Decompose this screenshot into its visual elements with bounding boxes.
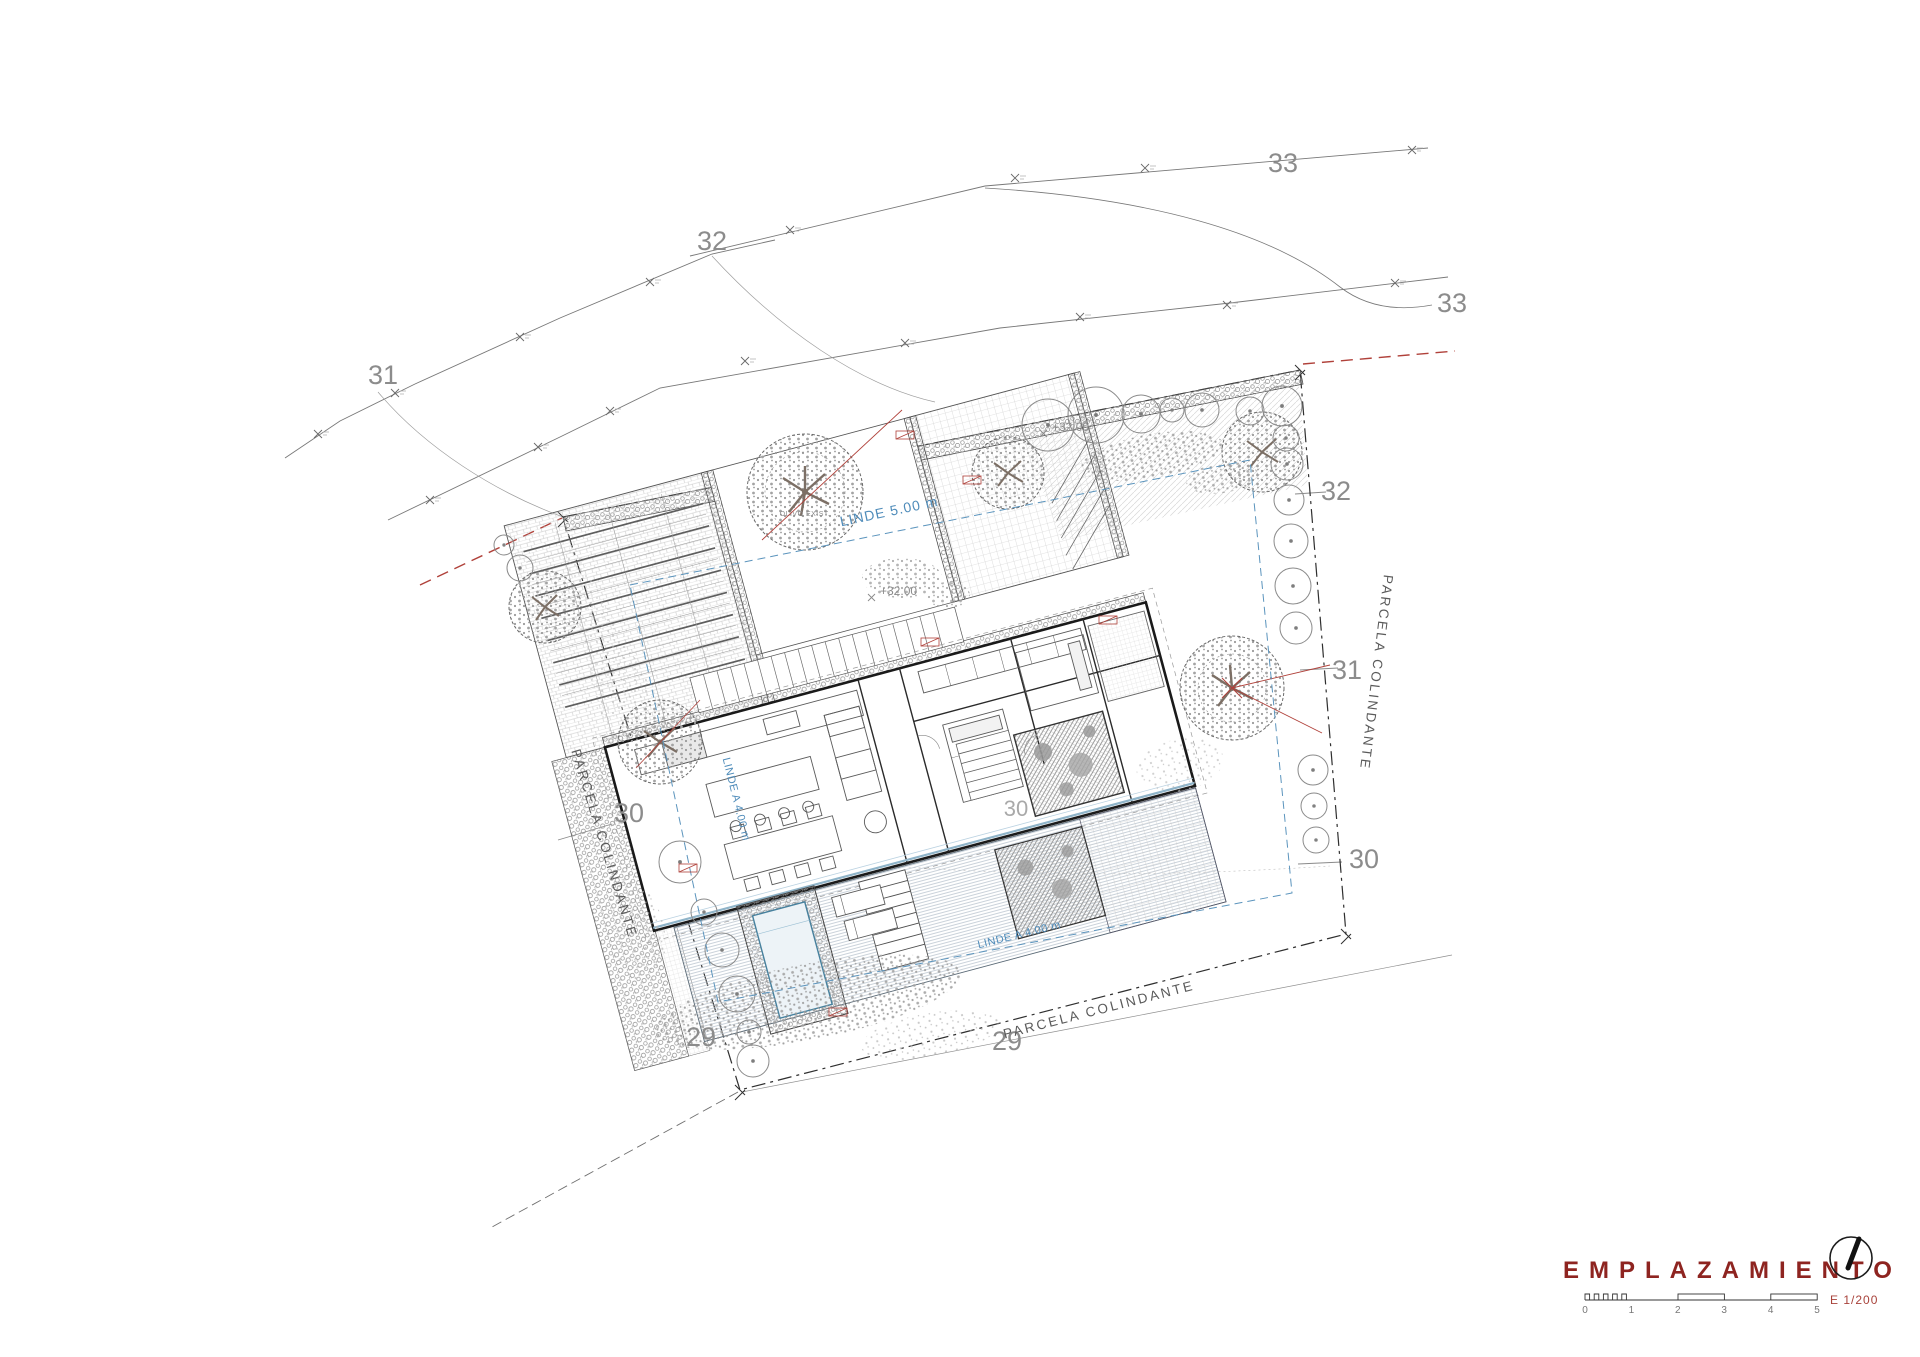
contour-label-30-left: 30 xyxy=(614,798,644,828)
contour-label-31-right: 31 xyxy=(1332,655,1362,685)
contour-label-33-right: 33 xyxy=(1437,288,1467,318)
tree-circle xyxy=(737,1045,769,1077)
olive-tree xyxy=(618,700,702,784)
olive-tree xyxy=(509,571,581,643)
parcela-label-bottom: PARCELA COLINDANTE xyxy=(1002,978,1197,1042)
tree-circle xyxy=(1274,524,1308,558)
parcela-label-right: PARCELA COLINDANTE xyxy=(1357,574,1396,771)
contour-label-31-left: 31 xyxy=(368,360,398,390)
tree-circle xyxy=(1303,827,1329,853)
tree-circle xyxy=(1298,755,1328,785)
scale-tick-3: 3 xyxy=(1721,1305,1727,1316)
tree-circle xyxy=(1301,793,1327,819)
contour-label-29-left: 29 xyxy=(686,1022,716,1052)
svg-text:+32.00: +32.00 xyxy=(880,584,917,598)
olive-tree xyxy=(972,437,1044,509)
contour-label-32-top: 32 xyxy=(697,226,727,256)
scale-tick-2: 2 xyxy=(1675,1305,1681,1316)
title-block: EMPLAZAMIENTO 0 1 2 3 4 5 E 1/200 xyxy=(1563,1237,1902,1316)
tree-circle xyxy=(1274,485,1304,515)
site-plan-drawing: OLIVO EXIST. xyxy=(0,0,1920,1357)
scale-tick-0: 0 xyxy=(1582,1305,1588,1316)
scale-tick-1: 1 xyxy=(1629,1305,1635,1316)
site-plan-sheet: OLIVO EXIST. xyxy=(0,0,1920,1357)
tree-circle xyxy=(1280,612,1312,644)
contour-label-33-top: 33 xyxy=(1268,148,1298,178)
contour-label-30-inner: 30 xyxy=(1004,796,1028,821)
scale-bar: 0 1 2 3 4 5 E 1/200 xyxy=(1582,1293,1878,1316)
scale-ratio-label: E 1/200 xyxy=(1830,1293,1878,1307)
contour-label-32-right: 32 xyxy=(1321,476,1351,506)
svg-text:+32.00: +32.00 xyxy=(1052,420,1089,434)
contour-label-30-right: 30 xyxy=(1349,844,1379,874)
scale-tick-4: 4 xyxy=(1768,1305,1774,1316)
scale-tick-5: 5 xyxy=(1814,1305,1820,1316)
olive-tree xyxy=(1180,636,1330,740)
tree-circle xyxy=(1275,568,1311,604)
